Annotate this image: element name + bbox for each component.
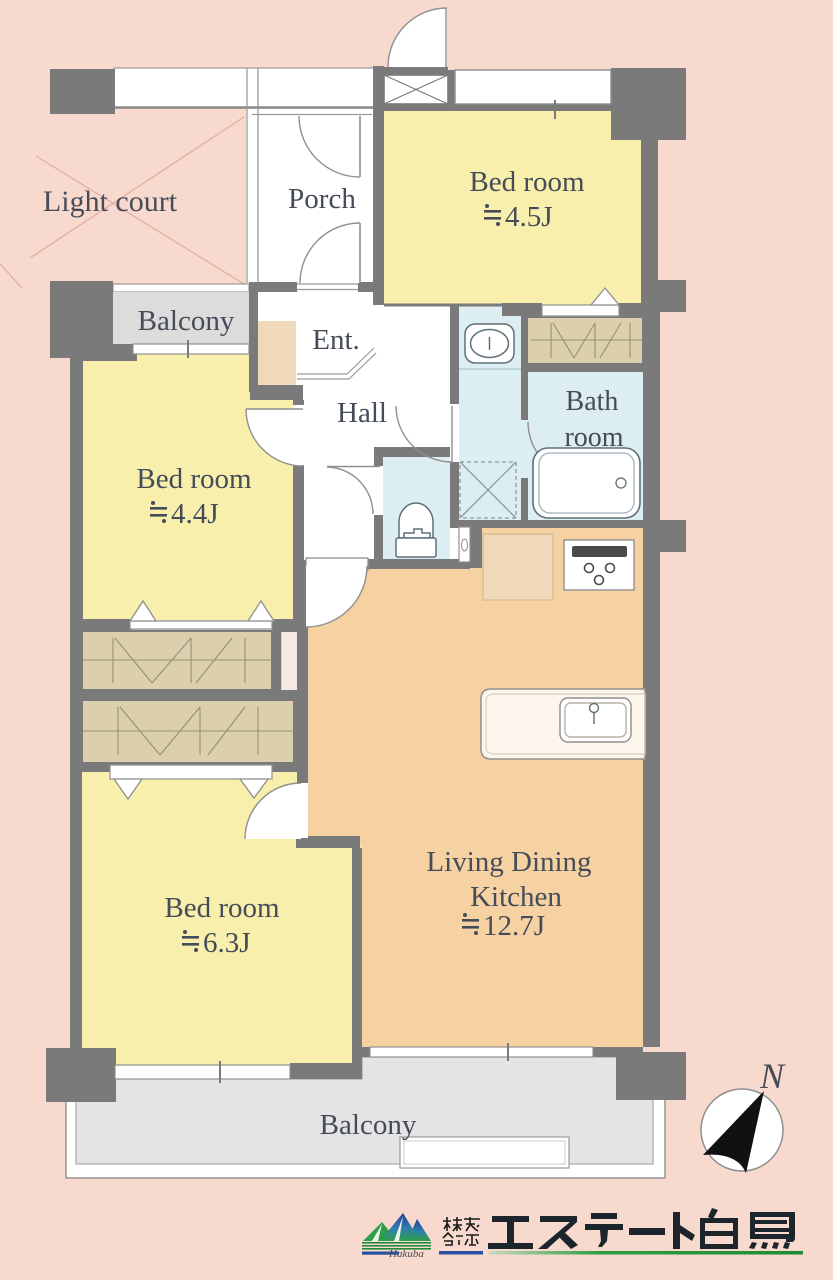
svg-text:4.5J: 4.5J (505, 201, 553, 233)
svg-text:Bath: Bath (566, 386, 619, 417)
svg-text:Hakuba: Hakuba (388, 1248, 424, 1260)
svg-text:12.7J: 12.7J (483, 910, 545, 942)
svg-text:4.4J: 4.4J (171, 498, 219, 530)
svg-text:Ent.: Ent. (312, 324, 360, 356)
svg-text:Kitchen: Kitchen (470, 881, 562, 913)
svg-text:Bed room: Bed room (164, 892, 280, 924)
svg-text:Bed room: Bed room (469, 166, 585, 198)
svg-text:Hall: Hall (337, 397, 387, 429)
svg-text:Light court: Light court (43, 185, 178, 218)
svg-text:Balcony: Balcony (138, 305, 235, 337)
svg-text:6.3J: 6.3J (203, 927, 251, 959)
svg-text:Living Dining: Living Dining (426, 846, 591, 878)
svg-text:room: room (564, 422, 623, 453)
svg-text:Porch: Porch (288, 183, 356, 215)
svg-text:Balcony: Balcony (320, 1109, 417, 1141)
svg-text:N: N (759, 1056, 786, 1096)
svg-text:Bed room: Bed room (136, 463, 252, 495)
